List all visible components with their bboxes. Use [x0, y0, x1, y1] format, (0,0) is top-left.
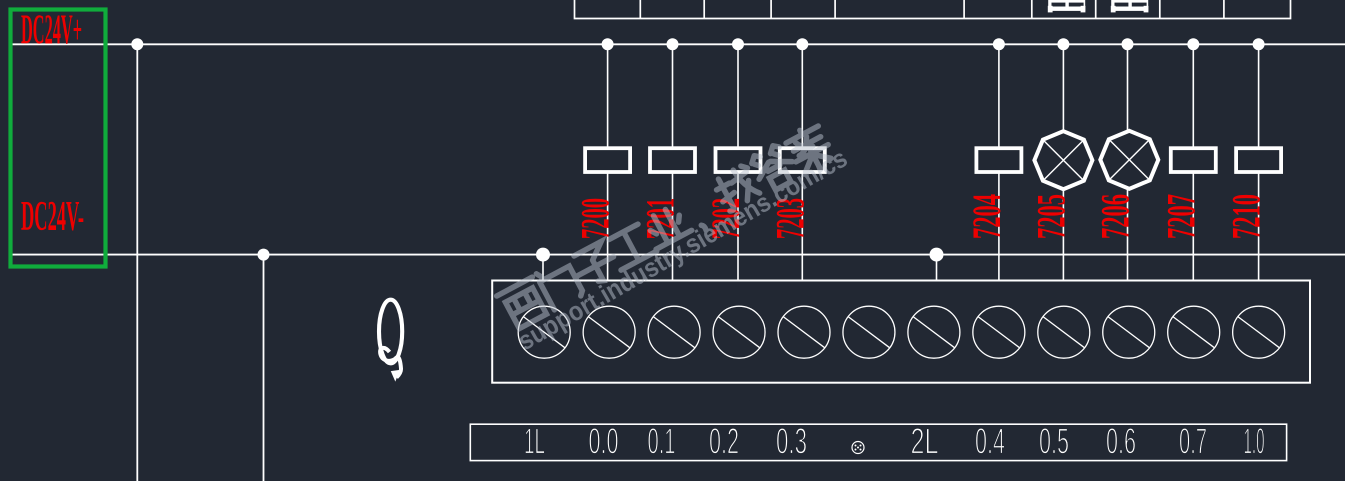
svg-text:DC24V+: DC24V+ — [21, 8, 82, 54]
svg-text:0.2: 0.2 — [709, 421, 739, 462]
svg-text:7200: 7200 — [573, 198, 618, 239]
svg-text:0.3: 0.3 — [776, 421, 807, 462]
svg-text:0.1: 0.1 — [648, 421, 676, 462]
svg-text:7207: 7207 — [1158, 194, 1203, 239]
svg-text:7204: 7204 — [964, 194, 1009, 239]
svg-text:0.7: 0.7 — [1179, 421, 1207, 462]
svg-text:0.5: 0.5 — [1039, 421, 1069, 462]
svg-text:7205: 7205 — [1028, 194, 1073, 239]
svg-text:7206: 7206 — [1093, 194, 1138, 239]
svg-text:1L: 1L — [524, 421, 545, 462]
svg-text:0.6: 0.6 — [1106, 421, 1136, 462]
svg-text:0.0: 0.0 — [589, 421, 619, 462]
svg-text:0.4: 0.4 — [975, 421, 1005, 462]
svg-text:7210: 7210 — [1224, 194, 1269, 239]
svg-text:DC24V-: DC24V- — [21, 194, 84, 240]
svg-text:2L: 2L — [911, 421, 939, 462]
svg-text:1.0: 1.0 — [1244, 421, 1265, 462]
